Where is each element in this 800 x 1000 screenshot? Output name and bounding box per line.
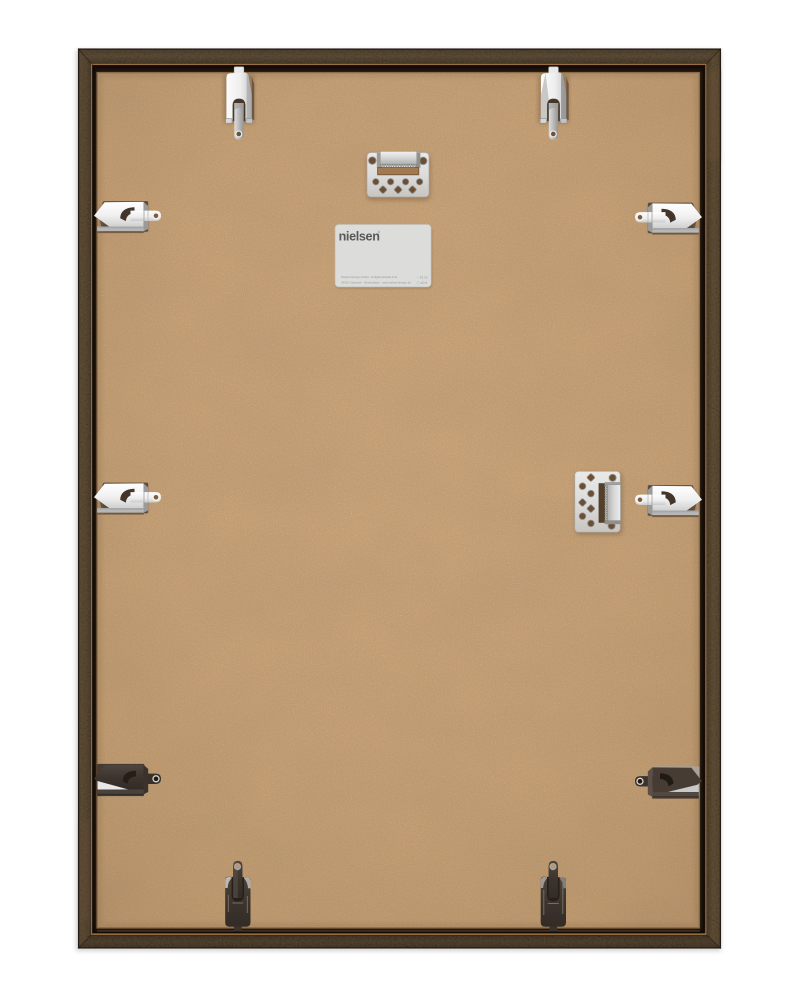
svg-text:nielsen: nielsen bbox=[339, 229, 380, 243]
svg-text:33332 Gütersloh · Deutschland: 33332 Gütersloh · Deutschland · www.niel… bbox=[341, 281, 411, 285]
svg-text:▢ 40.6: ▢ 40.6 bbox=[417, 281, 428, 285]
svg-text:Nielsen Design GmbH · Hofgarte: Nielsen Design GmbH · Hofgartenstraße 9-… bbox=[341, 275, 398, 279]
svg-text:– 13 12: – 13 12 bbox=[417, 275, 428, 279]
